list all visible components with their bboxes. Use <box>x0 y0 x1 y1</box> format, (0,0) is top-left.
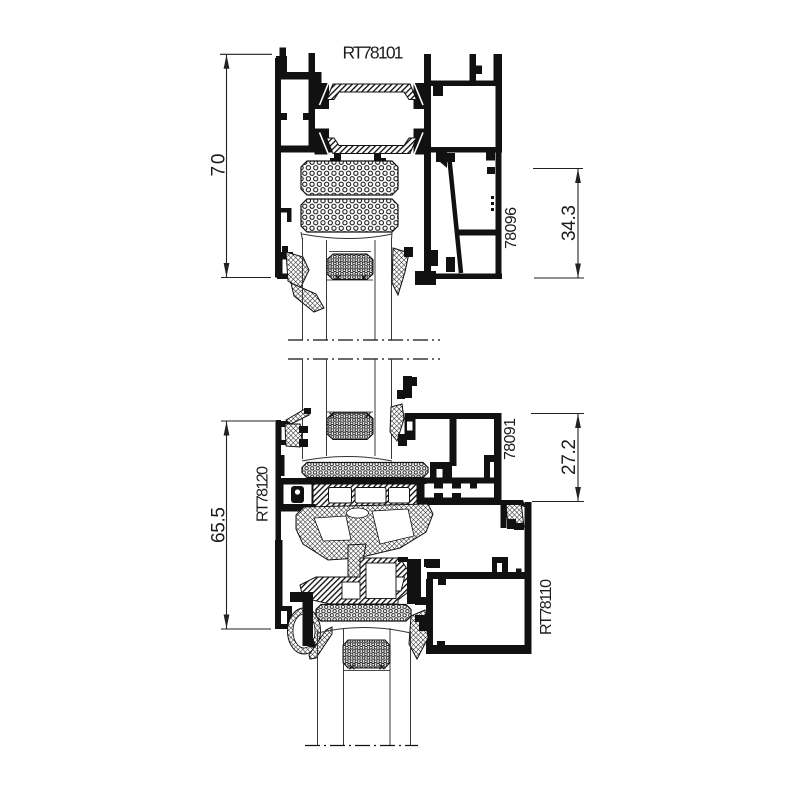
svg-text:65.5: 65.5 <box>209 507 230 543</box>
svg-text:70: 70 <box>209 154 230 177</box>
svg-text:78096: 78096 <box>503 207 520 249</box>
svg-text:27.2: 27.2 <box>559 439 580 475</box>
svg-text:RT78120: RT78120 <box>255 466 272 522</box>
svg-text:78091: 78091 <box>502 418 519 460</box>
svg-text:RT78110: RT78110 <box>538 579 555 635</box>
svg-text:RT78101: RT78101 <box>343 43 404 63</box>
svg-text:34.3: 34.3 <box>559 205 580 241</box>
